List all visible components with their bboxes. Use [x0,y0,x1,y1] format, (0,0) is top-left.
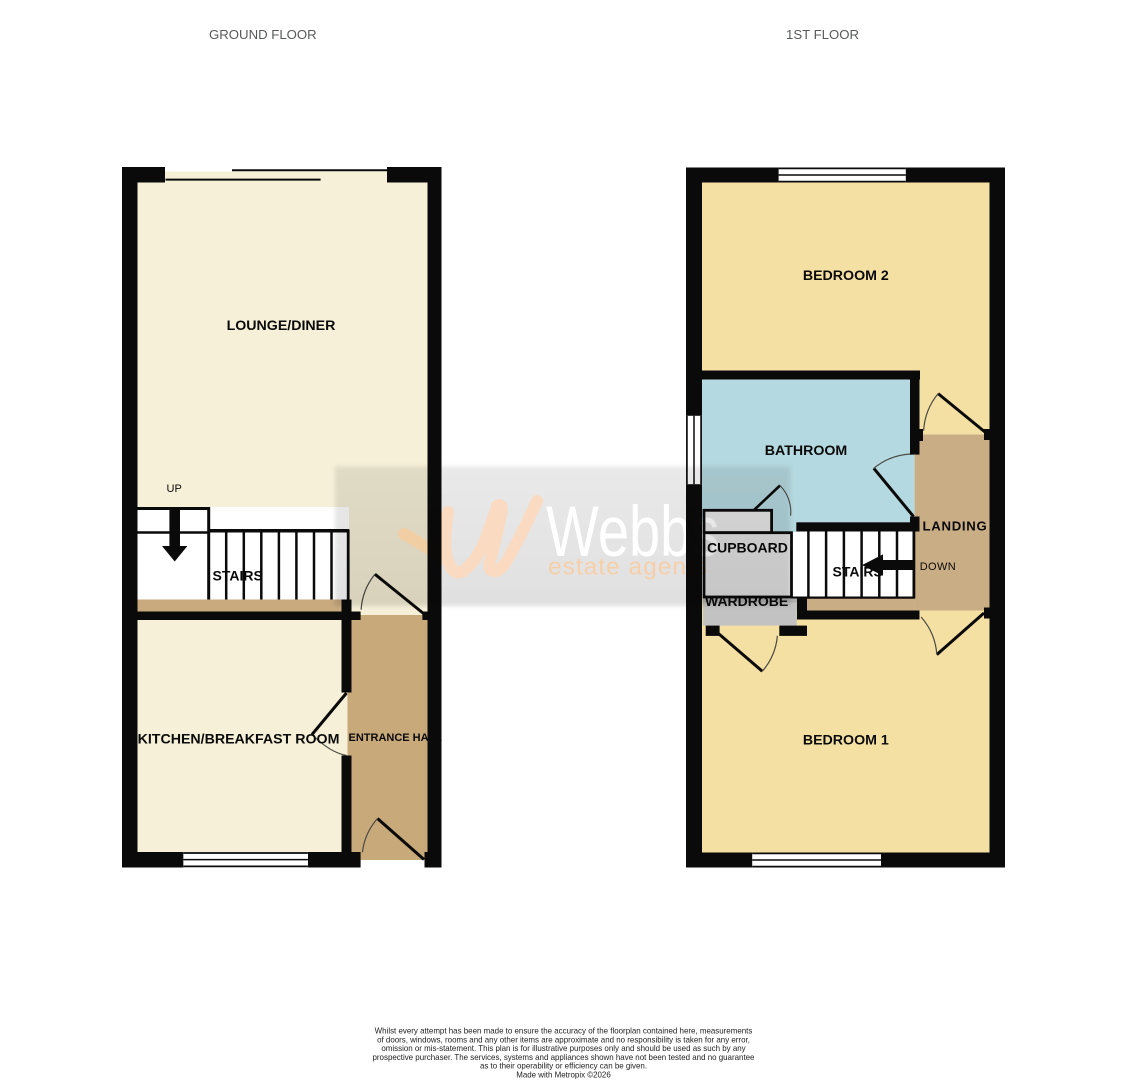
svg-text:prospective purchaser. The ser: prospective purchaser. The services, sys… [373,1053,756,1062]
svg-text:Whilst every attempt has been: Whilst every attempt has been made to en… [375,1027,753,1036]
svg-text:Made with Metropix ©2026: Made with Metropix ©2026 [516,1071,611,1080]
svg-text:1ST FLOOR: 1ST FLOOR [786,27,859,42]
svg-text:estate agents: estate agents [548,554,708,581]
svg-text:BEDROOM 2: BEDROOM 2 [803,268,889,284]
svg-text:omission or mis-statement. Thi: omission or mis-statement. This plan is … [381,1044,745,1053]
svg-text:UP: UP [167,483,182,495]
svg-text:STAIRS: STAIRS [213,568,263,584]
svg-text:KITCHEN/BREAKFAST ROOM: KITCHEN/BREAKFAST ROOM [138,732,340,748]
svg-text:as to their operability or eff: as to their operability or efficiency ca… [480,1062,647,1071]
svg-text:BATHROOM: BATHROOM [765,443,848,459]
svg-text:LANDING: LANDING [923,519,988,534]
svg-text:of doors, windows, rooms and a: of doors, windows, rooms and any other i… [377,1035,750,1044]
svg-text:LOUNGE/DINER: LOUNGE/DINER [227,318,336,334]
svg-text:DOWN: DOWN [920,561,956,573]
svg-text:BEDROOM 1: BEDROOM 1 [803,733,889,749]
svg-text:GROUND FLOOR: GROUND FLOOR [209,27,317,42]
